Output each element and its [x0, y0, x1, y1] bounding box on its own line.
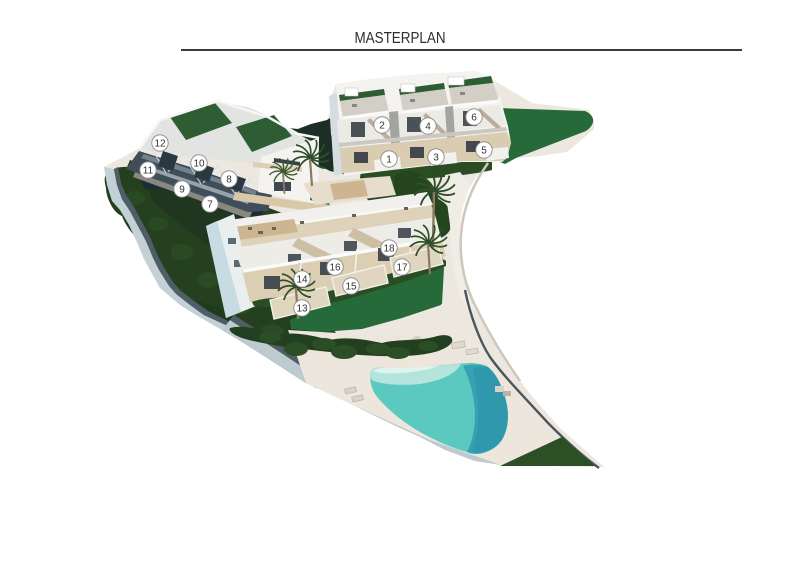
svg-text:8: 8 [226, 175, 232, 186]
svg-text:12: 12 [154, 139, 166, 150]
svg-text:2: 2 [379, 121, 385, 132]
svg-text:5: 5 [481, 146, 487, 157]
svg-text:1: 1 [386, 155, 392, 166]
svg-text:16: 16 [329, 263, 341, 274]
svg-text:9: 9 [179, 185, 185, 196]
svg-text:10: 10 [193, 159, 205, 170]
svg-text:6: 6 [471, 113, 477, 124]
svg-text:15: 15 [345, 282, 357, 293]
svg-text:17: 17 [396, 263, 408, 274]
svg-text:13: 13 [296, 304, 308, 315]
svg-text:4: 4 [425, 122, 431, 133]
svg-text:14: 14 [296, 275, 308, 286]
svg-text:7: 7 [207, 200, 213, 211]
svg-text:18: 18 [383, 244, 395, 255]
svg-text:11: 11 [143, 166, 154, 177]
svg-text:3: 3 [433, 153, 439, 164]
